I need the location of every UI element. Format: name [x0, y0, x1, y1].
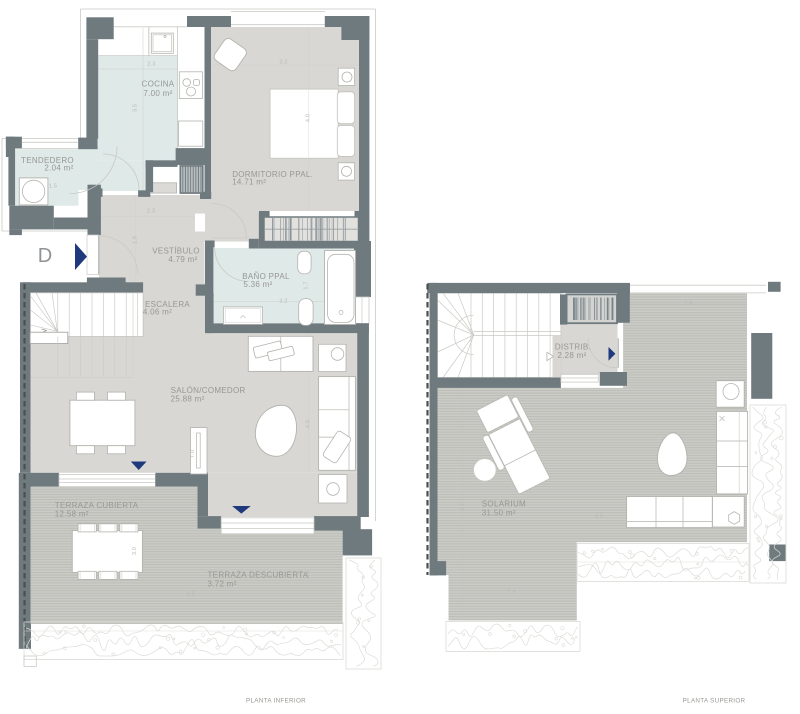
- svg-text:4.79 m²: 4.79 m²: [168, 255, 197, 264]
- svg-text:COCINA: COCINA: [142, 80, 175, 89]
- svg-text:PLANTA SUPERIOR: PLANTA SUPERIOR: [683, 698, 746, 705]
- svg-text:TERRAZA DESCUBIERTA: TERRAZA DESCUBIERTA: [208, 571, 309, 580]
- svg-text:3.5: 3.5: [133, 104, 139, 112]
- svg-text:6.5: 6.5: [595, 514, 603, 520]
- svg-text:3.2: 3.2: [279, 299, 287, 305]
- svg-text:2.0: 2.0: [305, 571, 311, 579]
- svg-text:2.6: 2.6: [684, 301, 692, 307]
- svg-text:2.3: 2.3: [147, 209, 155, 215]
- svg-text:3.72 m²: 3.72 m²: [208, 580, 237, 589]
- svg-text:2.04 m²: 2.04 m²: [44, 163, 73, 172]
- svg-text:6.5: 6.5: [187, 592, 195, 598]
- svg-text:TERRAZA CUBIERTA: TERRAZA CUBIERTA: [55, 501, 139, 510]
- svg-text:5.36 m²: 5.36 m²: [243, 280, 272, 289]
- svg-text:1.5: 1.5: [49, 184, 57, 190]
- svg-text:3.1: 3.1: [460, 503, 466, 511]
- svg-text:3.2: 3.2: [279, 60, 287, 66]
- svg-text:PLANTA INFERIOR: PLANTA INFERIOR: [246, 698, 306, 705]
- svg-text:7.00 m²: 7.00 m²: [143, 89, 172, 98]
- svg-text:25.88 m²: 25.88 m²: [171, 395, 205, 404]
- svg-text:D: D: [38, 245, 52, 267]
- svg-text:12.58 m²: 12.58 m²: [55, 510, 89, 519]
- svg-text:7.0: 7.0: [190, 450, 196, 458]
- svg-text:3.0: 3.0: [132, 547, 138, 555]
- svg-text:4.06 m²: 4.06 m²: [143, 308, 172, 317]
- svg-text:31.50 m²: 31.50 m²: [482, 509, 516, 518]
- svg-text:7.9: 7.9: [507, 590, 515, 596]
- svg-text:1.7: 1.7: [304, 281, 310, 289]
- svg-text:4.0: 4.0: [306, 420, 312, 428]
- svg-text:14.71 m²: 14.71 m²: [232, 177, 266, 186]
- svg-text:2.3: 2.3: [147, 62, 155, 68]
- svg-text:2.28 m²: 2.28 m²: [557, 351, 586, 360]
- svg-text:4.0: 4.0: [306, 114, 312, 122]
- svg-text:SOLARIUM: SOLARIUM: [482, 500, 526, 509]
- svg-text:1.9: 1.9: [133, 236, 139, 244]
